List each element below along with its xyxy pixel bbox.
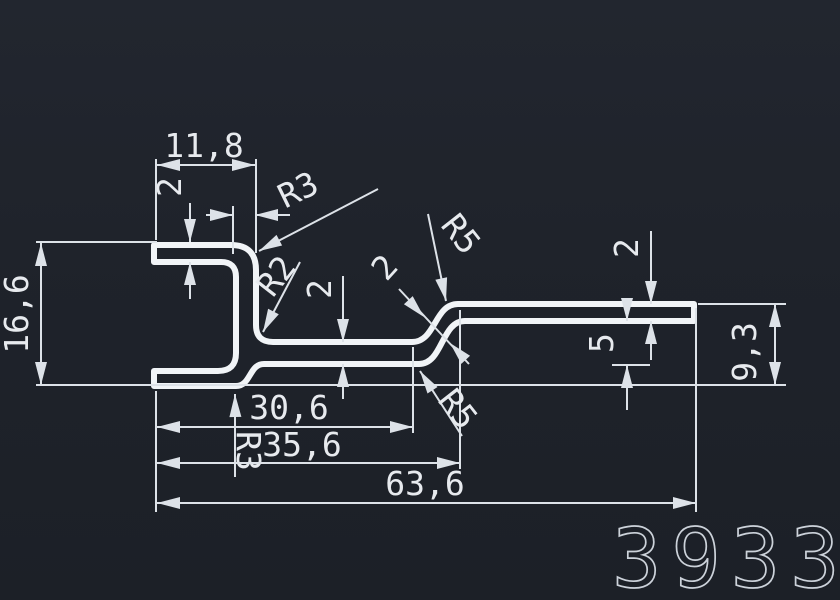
dim-label-slant-thickness: 2 — [363, 247, 405, 288]
dim-label-radius-upper-s: R5 — [433, 206, 488, 261]
dim-label-radius-lower-s: R5 — [430, 381, 485, 436]
radius-callout-lower-s: R5 — [415, 368, 486, 437]
dim-label-web-thickness: 2 — [300, 279, 339, 299]
dimension-web-thickness: 2 — [300, 276, 349, 399]
dim-label-height-right: 9,3 — [725, 322, 764, 382]
dimension-stem-thickness — [206, 209, 290, 221]
dim-label-width-inner: 30,6 — [249, 388, 328, 427]
dim-label-radius-top-outer: R3 — [272, 163, 325, 215]
dimension-height-right: 9,3 — [725, 304, 781, 385]
radius-callout-top-outer: R3 — [256, 163, 378, 256]
dimension-top-width: 11,8 — [157, 126, 255, 171]
radius-callout-upper-s: R5 — [428, 206, 489, 302]
dimension-width-mid: 35,6 — [157, 425, 460, 469]
dimension-height-left: 16,6 — [0, 243, 47, 385]
dimension-step-height: 5 — [582, 298, 633, 410]
dim-label-top-thickness: 2 — [150, 177, 189, 197]
technical-drawing-canvas: 11,8 2 R3 R2 2 16,6 R5 — [0, 0, 840, 600]
extension-lines — [36, 159, 786, 512]
dim-label-step-height: 5 — [582, 333, 621, 353]
cad-drawing-viewport: 11,8 2 R3 R2 2 16,6 R5 — [0, 0, 840, 600]
dim-label-width-total: 63,6 — [385, 464, 464, 503]
dim-label-right-thickness: 2 — [607, 238, 646, 258]
dim-label-top-width: 11,8 — [164, 126, 243, 165]
dim-label-width-mid: 35,6 — [262, 425, 341, 464]
part-number: 3933 — [612, 512, 840, 600]
dim-label-height-left: 16,6 — [0, 274, 36, 353]
